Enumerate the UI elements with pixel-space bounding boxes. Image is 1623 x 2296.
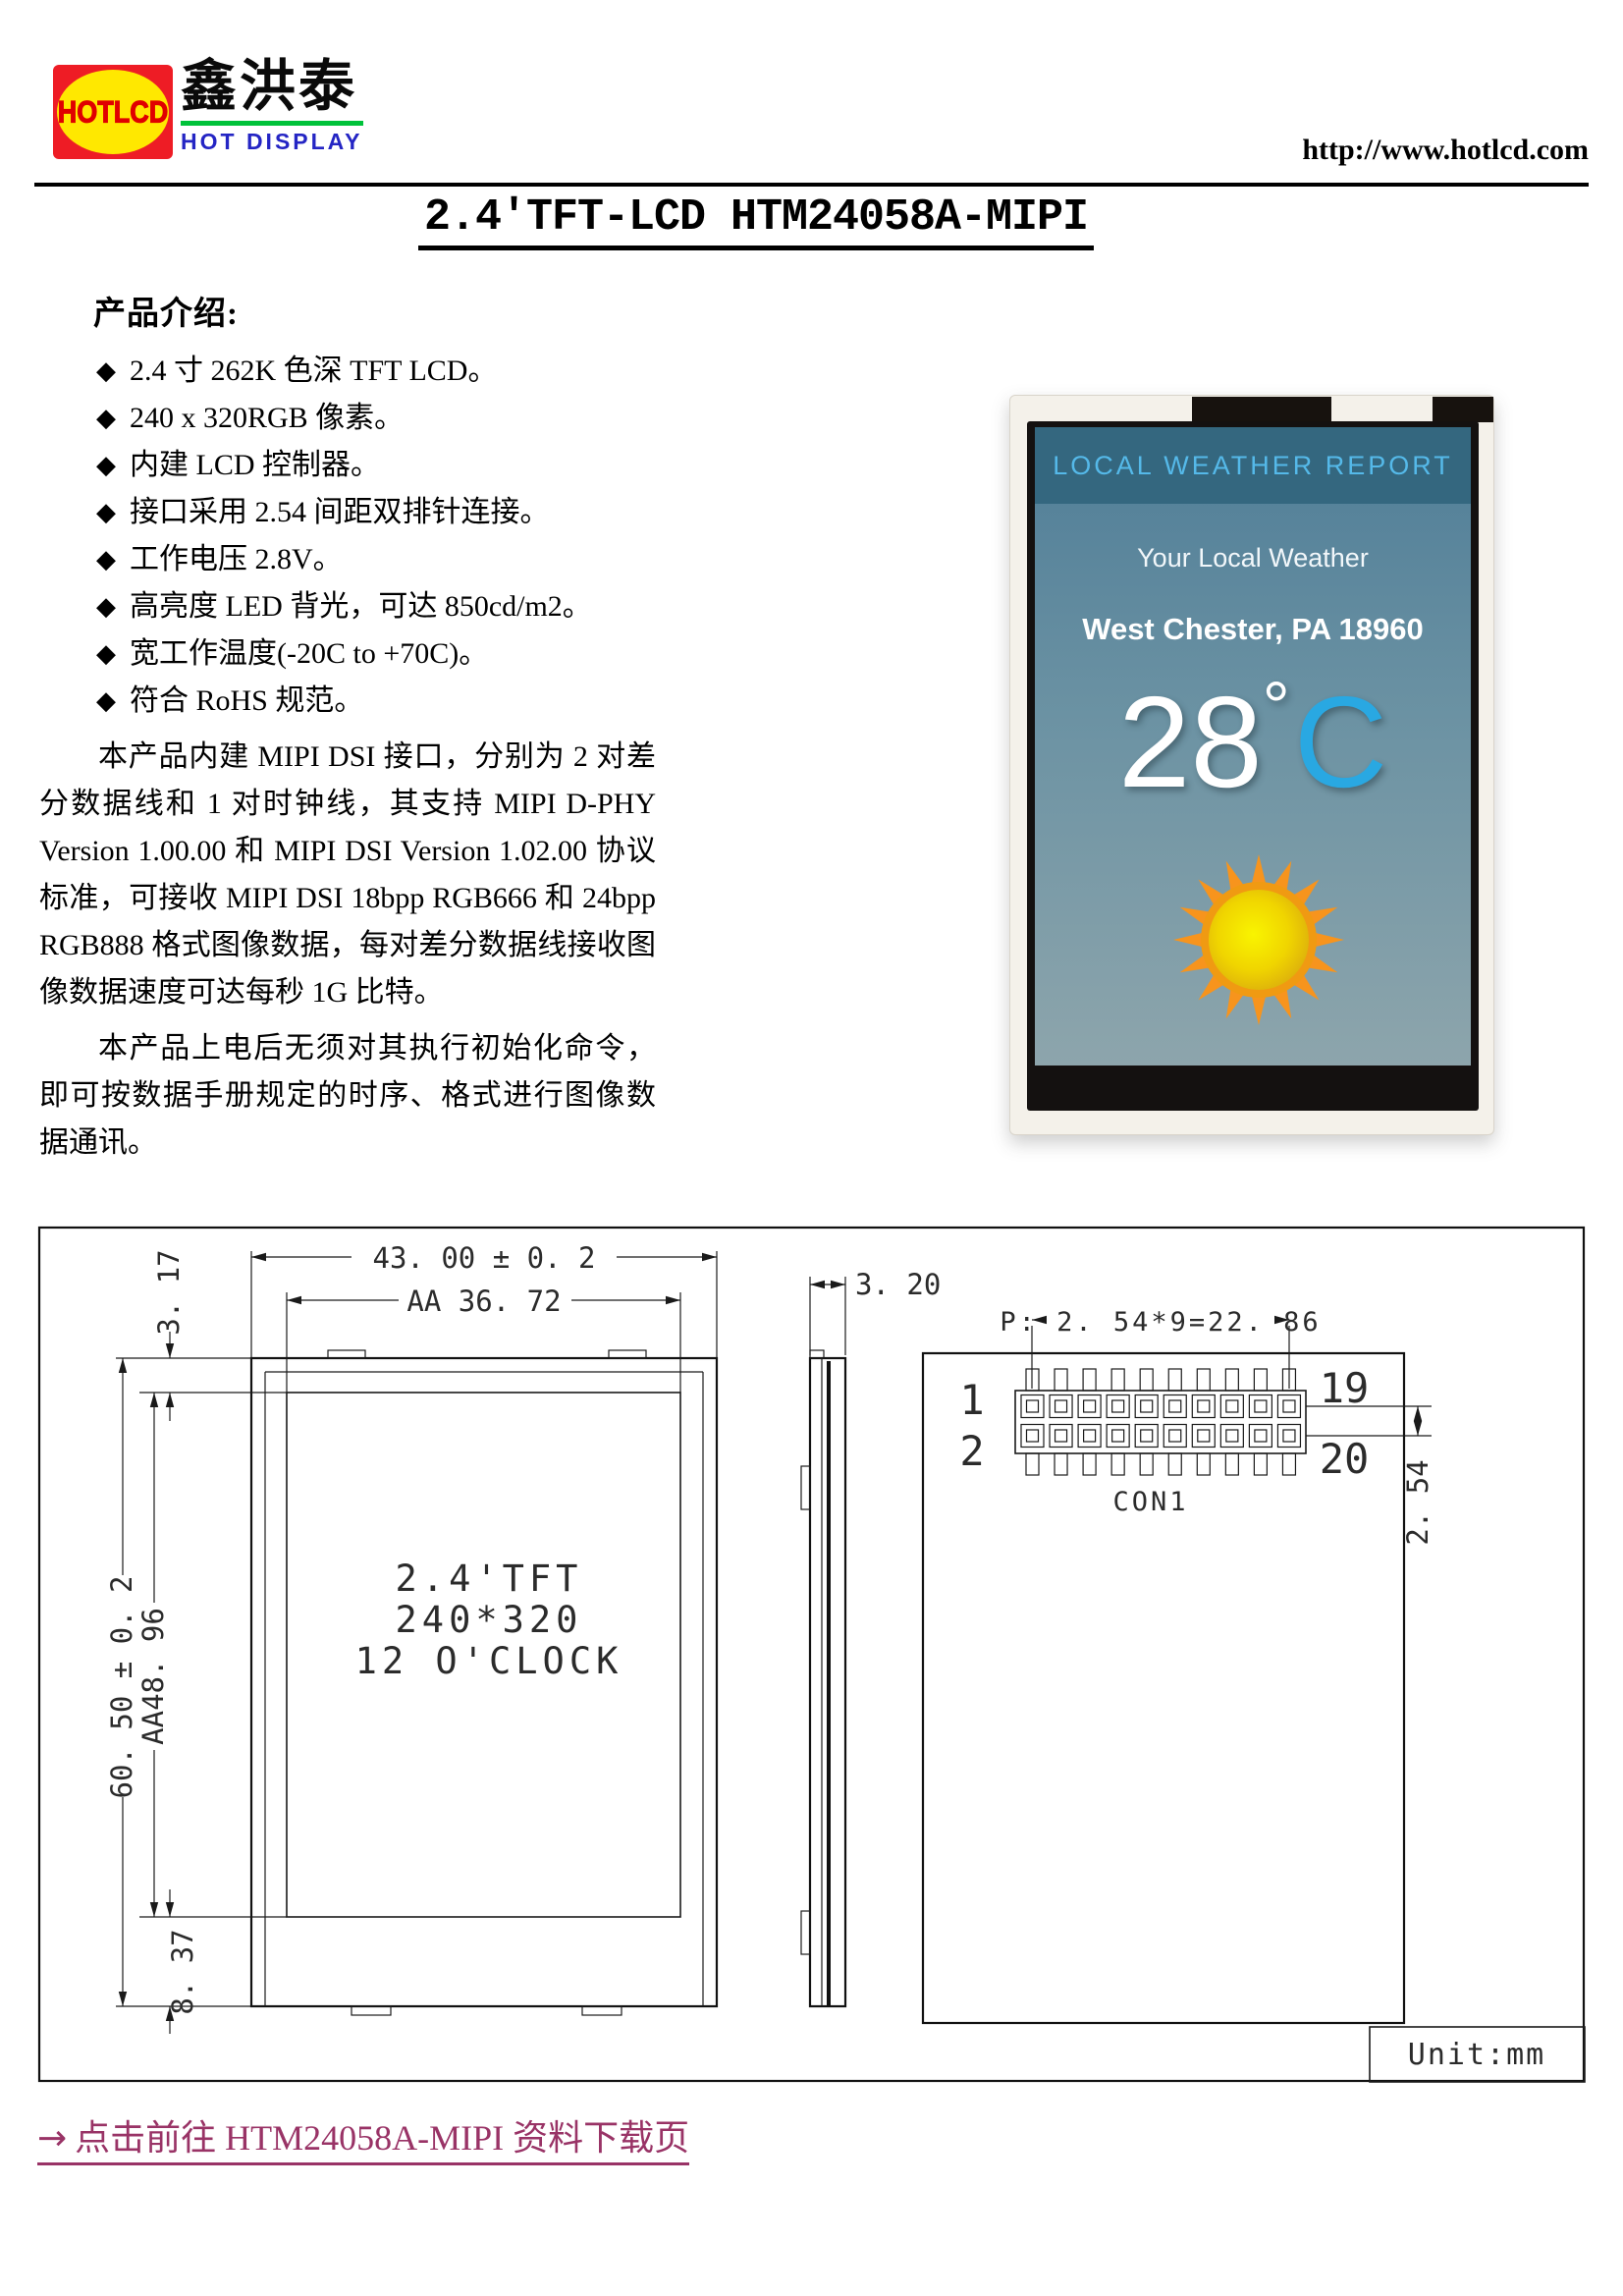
feature-text: 2.4 寸 262K 色深 TFT LCD。 — [130, 355, 497, 387]
intro-paragraph-1: 本产品内建 MIPI DSI 接口，分别为 2 对差分数据线和 1 对时钟线，其… — [39, 734, 656, 1016]
dim-top-margin-label: 3. 17 — [152, 1249, 186, 1335]
website-url-link[interactable]: http://www.hotlcd.com — [1302, 134, 1589, 167]
list-item: ◆2.4 寸 262K 色深 TFT LCD。 — [96, 348, 656, 395]
dim-aa-width: AA 36. 72 — [287, 1284, 680, 1393]
connector-name-label: CON1 — [1112, 1487, 1188, 1517]
title-block: Unit:mm — [1370, 2027, 1585, 2082]
diamond-bullet-icon: ◆ — [96, 584, 116, 630]
diamond-bullet-icon: ◆ — [96, 679, 116, 725]
dim-total-height-label: 60. 50 ± 0. 2 — [105, 1576, 138, 1799]
unit-note: Unit:mm — [1408, 2038, 1545, 2072]
connector: 1 2 19 20 CON1 — [959, 1364, 1432, 1517]
download-link-text: 点击前往 HTM24058A-MIPI 资料下载页 — [75, 2118, 689, 2158]
dim-total-width-label: 43. 00 ± 0. 2 — [373, 1241, 596, 1275]
pin-1-label: 1 — [959, 1376, 984, 1424]
screen-header-band: LOCAL WEATHER REPORT — [1035, 427, 1471, 504]
dim-aa-height-label: AA48. 96 — [136, 1608, 170, 1745]
feature-text: 高亮度 LED 背光，可达 850cd/m2。 — [130, 590, 592, 623]
dim-bottom-margin-label: 8. 37 — [166, 1929, 199, 2014]
dimension-arrows — [119, 1253, 1422, 2021]
intro-paragraph-2: 本产品上电后无须对其执行初始化命令，即可按数据手册规定的时序、格式进行图像数据通… — [39, 1025, 656, 1167]
feature-list: ◆2.4 寸 262K 色深 TFT LCD。 ◆240 x 320RGB 像素… — [96, 348, 656, 725]
dim-pitch: P: 2. 54*9=22. 86 — [1000, 1304, 1321, 1389]
header-divider — [34, 183, 1589, 187]
dim-top-margin: 3. 17 — [152, 1249, 186, 1421]
side-view — [801, 1350, 845, 2006]
list-item: ◆接口采用 2.54 间距双排针连接。 — [96, 489, 656, 536]
list-item: ◆240 x 320RGB 像素。 — [96, 395, 656, 442]
diamond-bullet-icon: ◆ — [96, 537, 116, 583]
intro-heading: 产品介绍: — [93, 287, 656, 334]
company-logo: HOTLCD — [53, 65, 173, 159]
brand-green-divider — [181, 121, 363, 126]
list-item: ◆内建 LCD 控制器。 — [96, 442, 656, 489]
dim-pitch-label: P: 2. 54*9=22. 86 — [1000, 1307, 1321, 1338]
logo-hotlcd-text: HOTLCD — [58, 94, 168, 130]
list-item: ◆工作电压 2.8V。 — [96, 536, 656, 583]
feature-text: 内建 LCD 控制器。 — [130, 449, 380, 481]
panel-resolution-label: 240*320 — [396, 1599, 583, 1641]
datasheet-page: HOTLCD 鑫洪泰 HOT DISPLAY http://www.hotlcd… — [0, 0, 1623, 2296]
screen-location: West Chester, PA 18960 — [1035, 612, 1471, 647]
pin-2-label: 2 — [959, 1427, 984, 1475]
logo-ellipse: HOTLCD — [57, 70, 169, 154]
temperature-value: 28 — [1118, 670, 1263, 814]
dim-total-height: 60. 50 ± 0. 2 — [105, 1358, 138, 2006]
product-photo: LOCAL WEATHER REPORT Your Local Weather … — [1009, 395, 1494, 1135]
lcd-bezel: LOCAL WEATHER REPORT Your Local Weather … — [1027, 421, 1479, 1111]
diamond-bullet-icon: ◆ — [96, 443, 116, 489]
panel-viewing-label: 12 O'CLOCK — [355, 1640, 623, 1682]
diamond-bullet-icon: ◆ — [96, 631, 116, 678]
diamond-bullet-icon: ◆ — [96, 490, 116, 536]
lcd-screen: LOCAL WEATHER REPORT Your Local Weather … — [1035, 427, 1471, 1066]
panel-size-label: 2.4'TFT — [396, 1558, 583, 1600]
diamond-bullet-icon: ◆ — [96, 349, 116, 395]
pin-19-label: 19 — [1320, 1364, 1370, 1412]
dimensional-drawing: 2.4'TFT 240*320 12 O'CLOCK 1 2 19 20 — [37, 1226, 1587, 2084]
dim-row-pitch-label: 2. 54 — [1401, 1459, 1434, 1545]
feature-text: 接口采用 2.54 间距双排针连接。 — [130, 496, 550, 528]
feature-text: 宽工作温度(-20C to +70C)。 — [130, 637, 488, 670]
feature-text: 240 x 320RGB 像素。 — [130, 402, 404, 434]
temperature-readout: 28°C — [1035, 667, 1471, 816]
list-item: ◆高亮度 LED 背光，可达 850cd/m2。 — [96, 583, 656, 630]
sun-icon — [1170, 851, 1347, 1028]
temperature-unit: C — [1294, 670, 1387, 814]
product-intro-section: 产品介绍: ◆2.4 寸 262K 色深 TFT LCD。 ◆240 x 320… — [39, 287, 656, 1167]
pin-20-label: 20 — [1320, 1435, 1370, 1483]
feature-text: 符合 RoHS 规范。 — [130, 684, 363, 717]
list-item: ◆符合 RoHS 规范。 — [96, 678, 656, 725]
title-row: 2.4'TFT-LCD HTM24058A-MIPI — [0, 192, 1512, 250]
degree-symbol: ° — [1263, 668, 1290, 744]
diamond-bullet-icon: ◆ — [96, 396, 116, 442]
page-title: 2.4'TFT-LCD HTM24058A-MIPI — [418, 192, 1094, 250]
dim-thickness-label: 3. 20 — [855, 1268, 941, 1301]
screen-header-text: LOCAL WEATHER REPORT — [1053, 451, 1453, 481]
brand-block: 鑫洪泰 HOT DISPLAY — [181, 57, 367, 155]
dim-thickness: 3. 20 — [810, 1268, 941, 1355]
drawing-border — [39, 1228, 1584, 2081]
download-page-link[interactable]: →点击前往 HTM24058A-MIPI 资料下载页 — [37, 2109, 689, 2165]
front-view: 2.4'TFT 240*320 12 O'CLOCK — [251, 1350, 717, 2015]
tape-strip — [1192, 397, 1331, 422]
screen-subtitle: Your Local Weather — [1035, 543, 1471, 574]
dim-aa-width-label: AA 36. 72 — [406, 1285, 561, 1318]
feature-text: 工作电压 2.8V。 — [130, 543, 343, 575]
list-item: ◆宽工作温度(-20C to +70C)。 — [96, 630, 656, 678]
dim-aa-height: AA48. 96 — [136, 1393, 170, 1917]
arrow-icon: → — [37, 2118, 67, 2159]
tape-strip — [1433, 397, 1493, 422]
brand-subtitle: HOT DISPLAY — [181, 129, 367, 155]
brand-chinese-name: 鑫洪泰 — [181, 57, 367, 118]
